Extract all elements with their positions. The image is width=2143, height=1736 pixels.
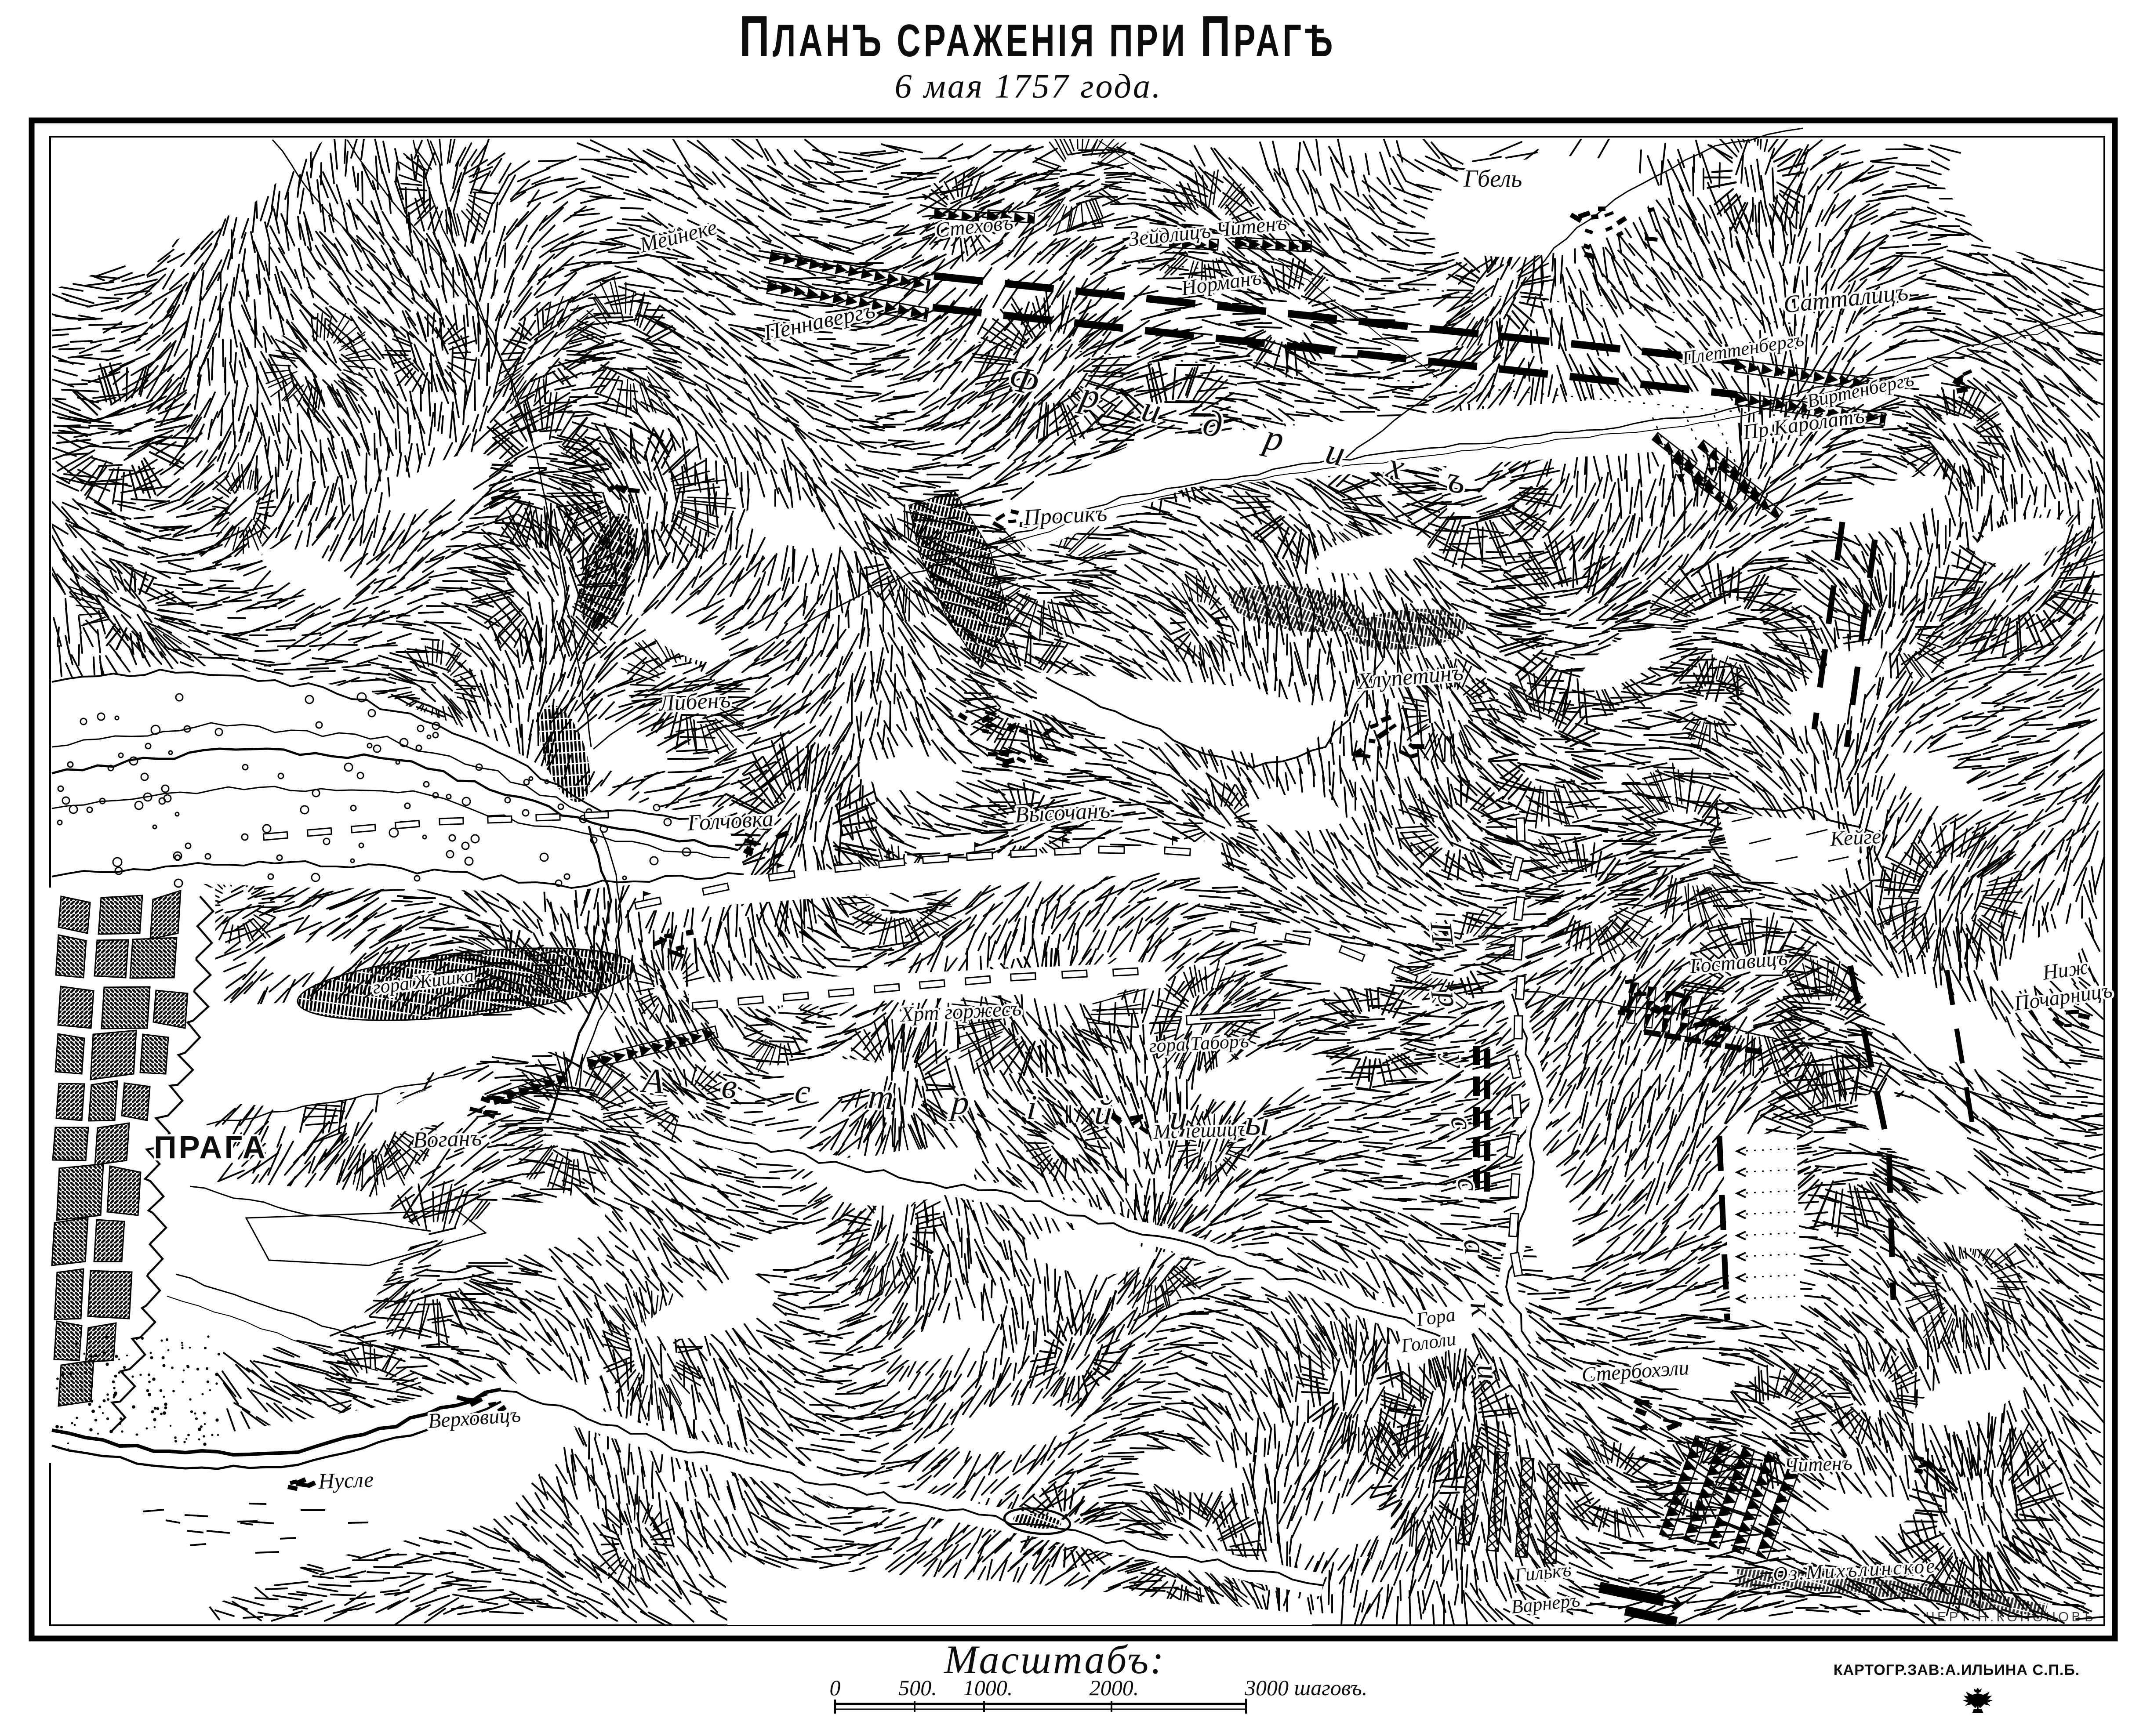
svg-text:2000.: 2000. [1090, 1675, 1139, 1700]
svg-text:ЧЕРТ:Н.КОНОНОВЪ: ЧЕРТ:Н.КОНОНОВЪ [1925, 1609, 2096, 1624]
svg-text:1000.: 1000. [963, 1675, 1013, 1700]
svg-text:Норманъ: Норманъ [1179, 266, 1263, 300]
svg-text:Гбель: Гбель [1463, 165, 1522, 192]
svg-text:КАРТОГР.ЗАВ:А.ИЛЬИНА С.П.Б.: КАРТОГР.ЗАВ:А.ИЛЬИНА С.П.Б. [1834, 1662, 2080, 1678]
svg-text:0: 0 [830, 1675, 841, 1700]
svg-text:Высочанъ: Высочанъ [1014, 798, 1111, 828]
svg-text:Воганъ: Воганъ [412, 1126, 482, 1153]
svg-text:Либенъ: Либенъ [657, 688, 731, 717]
svg-text:Оз.Михълинское: Оз.Михълинское [1773, 1555, 1937, 1585]
svg-text:Читенъ: Читенъ [1784, 1452, 1853, 1476]
svg-text:ПЛАНЪ СРАЖЕНIЯ ПРИ ПРАГѢ: ПЛАНЪ СРАЖЕНIЯ ПРИ ПРАГѢ [739, 4, 1336, 69]
svg-text:ПРАГА: ПРАГА [154, 1130, 268, 1165]
svg-text:Хрт горжесъ: Хрт горжесъ [899, 997, 1022, 1026]
svg-text:Кейге: Кейге [1829, 825, 1882, 851]
svg-text:Нусле: Нусле [317, 1467, 374, 1493]
svg-text:Сатталицъ: Сатталицъ [1782, 278, 1910, 318]
svg-text:Голчовка: Голчовка [686, 806, 774, 836]
svg-text:Хлупетинъ: Хлупетинъ [1355, 660, 1464, 694]
svg-text:3000 шаговъ.: 3000 шаговъ. [1244, 1675, 1367, 1700]
svg-text:Просикъ: Просикъ [1023, 501, 1108, 530]
svg-text:6 мая 1757 года.: 6 мая 1757 года. [895, 67, 1162, 105]
svg-text:500.: 500. [898, 1675, 937, 1700]
